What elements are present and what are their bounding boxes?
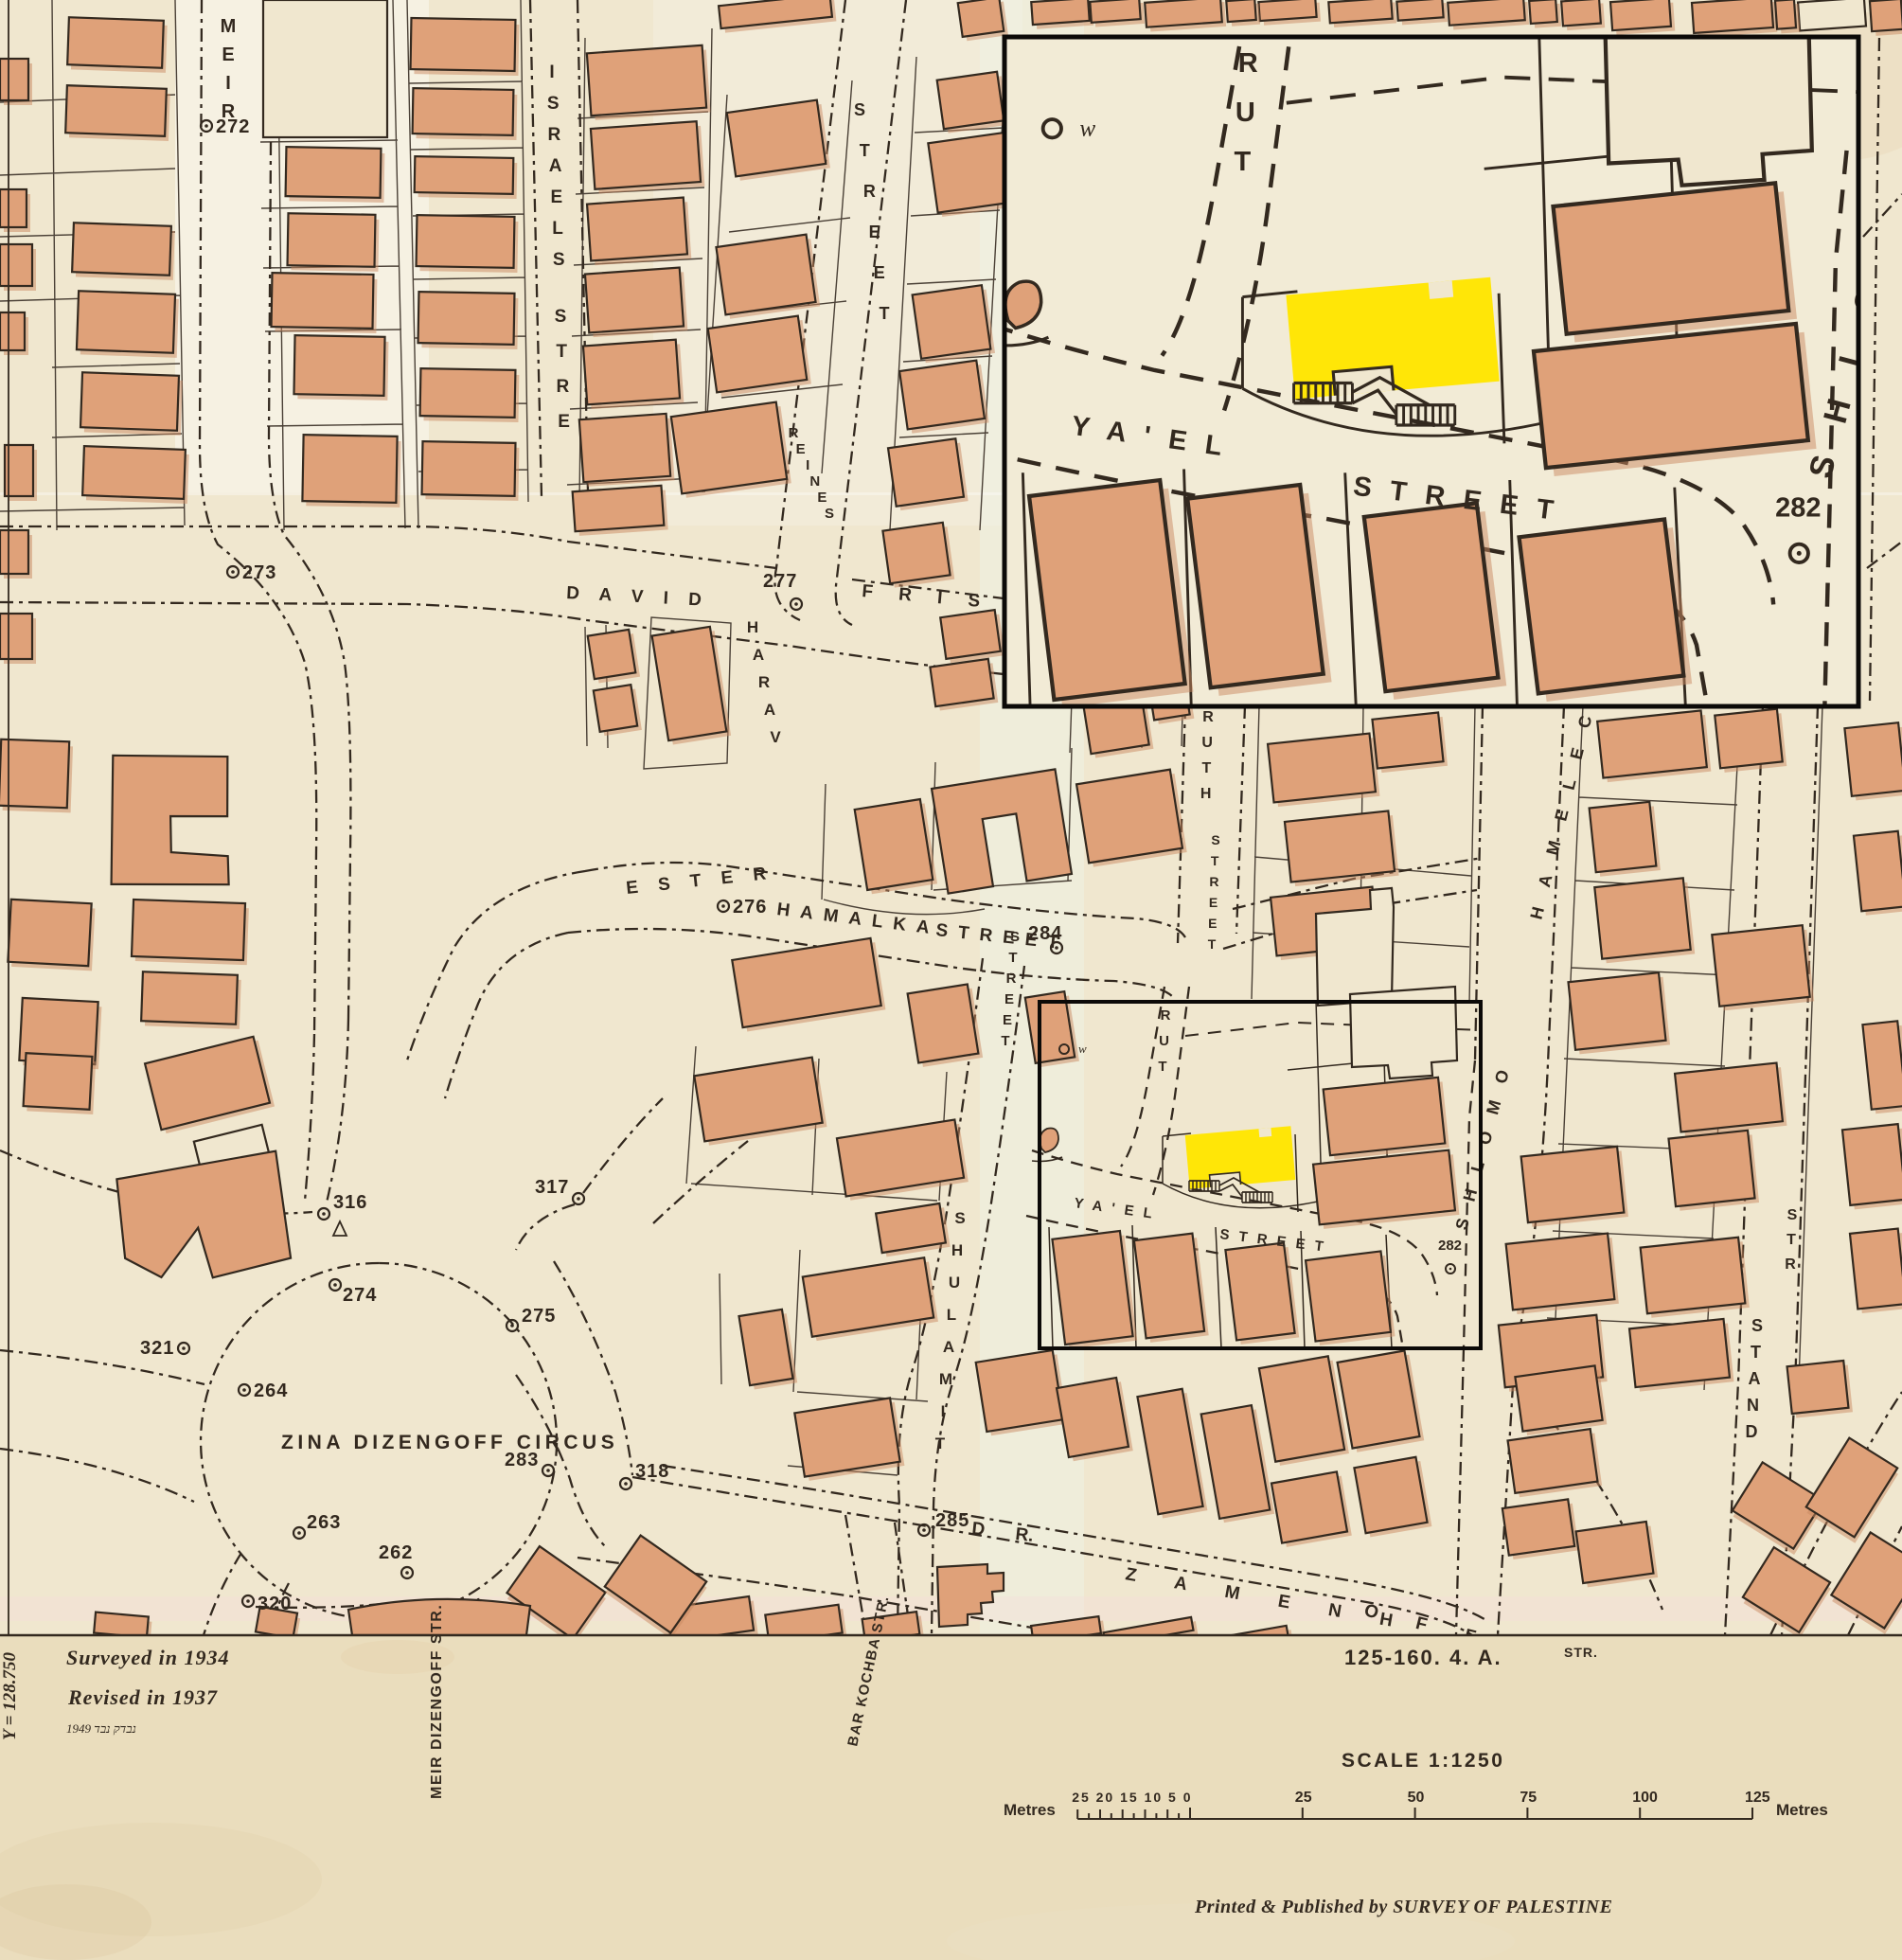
svg-text:125: 125: [1745, 1790, 1770, 1806]
svg-text:E: E: [1004, 991, 1014, 1007]
svg-text:SCALE 1:1250: SCALE 1:1250: [1342, 1750, 1504, 1772]
svg-text:E: E: [1003, 1012, 1012, 1028]
svg-text:MEIR DIZENGOFF STR.: MEIR DIZENGOFF STR.: [429, 1604, 445, 1799]
svg-text:S: S: [547, 94, 560, 114]
svg-text:25: 25: [1295, 1790, 1312, 1806]
svg-text:321: 321: [140, 1338, 174, 1359]
svg-text:75: 75: [1520, 1790, 1537, 1806]
svg-text:U: U: [1201, 735, 1213, 751]
svg-text:Y = 128.750: Y = 128.750: [0, 1652, 20, 1740]
svg-text:D: D: [1746, 1422, 1758, 1441]
svg-text:E: E: [817, 490, 827, 506]
svg-text:T: T: [1001, 1033, 1009, 1049]
svg-text:100: 100: [1632, 1790, 1658, 1806]
svg-text:T: T: [556, 342, 567, 362]
svg-text:S: S: [825, 506, 834, 522]
svg-text:25 20 15 10 5 0: 25 20 15 10 5 0: [1072, 1790, 1192, 1805]
svg-text:ZINA DIZENGOFF CIRCUS: ZINA DIZENGOFF CIRCUS: [281, 1432, 618, 1453]
svg-text:264: 264: [254, 1381, 288, 1401]
svg-text:R: R: [789, 425, 799, 441]
svg-text:T: T: [880, 304, 890, 323]
svg-text:V: V: [770, 728, 781, 746]
svg-text:Printed & Published by SURVEY: Printed & Published by SURVEY OF PALESTI…: [1194, 1897, 1612, 1917]
svg-text:T: T: [860, 141, 870, 160]
svg-text:H: H: [951, 1241, 963, 1259]
svg-text:E: E: [222, 45, 234, 65]
svg-text:L: L: [552, 219, 563, 239]
svg-text:Metres: Metres: [1776, 1801, 1828, 1819]
svg-text:125-160. 4. A.: 125-160. 4. A.: [1344, 1646, 1502, 1669]
svg-text:T: T: [1751, 1343, 1761, 1362]
svg-text:R: R: [1202, 709, 1214, 725]
svg-text:A: A: [764, 701, 775, 719]
svg-text:262: 262: [379, 1542, 413, 1563]
svg-text:A: A: [549, 156, 562, 176]
svg-text:R: R: [548, 125, 561, 145]
svg-text:T: T: [1008, 950, 1017, 966]
svg-text:283: 283: [505, 1450, 539, 1470]
svg-text:M: M: [221, 16, 237, 37]
svg-text:S: S: [1010, 929, 1020, 945]
svg-text:318: 318: [635, 1461, 669, 1482]
svg-text:T: T: [935, 1434, 946, 1452]
svg-text:R: R: [1006, 971, 1017, 987]
svg-text:E: E: [869, 223, 880, 241]
svg-text:T: T: [1208, 936, 1217, 952]
svg-text:R: R: [1785, 1256, 1796, 1273]
svg-text:H: H: [747, 618, 758, 636]
svg-text:D: D: [970, 1519, 986, 1540]
svg-text:A: A: [943, 1338, 954, 1356]
svg-text:I: I: [941, 1402, 946, 1420]
svg-text:R.: R.: [1014, 1524, 1034, 1546]
svg-text:285: 285: [935, 1510, 969, 1531]
svg-text:A: A: [1749, 1369, 1761, 1388]
svg-text:E: E: [796, 441, 806, 457]
svg-text:S: S: [1211, 832, 1219, 847]
svg-text:N: N: [809, 473, 820, 490]
svg-text:L: L: [947, 1306, 956, 1324]
svg-text:317: 317: [535, 1177, 569, 1198]
svg-text:274: 274: [343, 1285, 377, 1306]
svg-text:263: 263: [307, 1512, 341, 1533]
svg-text:R: R: [863, 182, 876, 201]
svg-text:T: T: [1786, 1232, 1796, 1248]
svg-text:R: R: [557, 377, 570, 397]
svg-text:S: S: [1751, 1316, 1763, 1335]
svg-text:E: E: [558, 412, 570, 432]
svg-text:T: T: [1202, 760, 1212, 776]
svg-text:A: A: [753, 646, 764, 664]
svg-text:M: M: [939, 1370, 952, 1388]
svg-text:Metres: Metres: [1004, 1801, 1056, 1819]
svg-text:R: R: [758, 673, 770, 691]
svg-text:E: E: [550, 187, 562, 207]
svg-text:S: S: [553, 250, 565, 270]
svg-text:H: H: [1200, 786, 1212, 802]
svg-text:S: S: [1787, 1207, 1798, 1223]
svg-text:E: E: [1208, 916, 1217, 931]
svg-text:284: 284: [1028, 923, 1062, 944]
svg-text:STR.: STR.: [1564, 1645, 1598, 1660]
svg-text:320: 320: [258, 1594, 292, 1614]
svg-text:272: 272: [216, 116, 250, 137]
svg-text:R: R: [1209, 874, 1218, 889]
svg-text:316: 316: [333, 1192, 367, 1213]
svg-text:I: I: [549, 62, 554, 82]
svg-text:277: 277: [763, 571, 797, 592]
svg-text:E: E: [1209, 895, 1218, 910]
svg-text:50: 50: [1408, 1790, 1425, 1806]
svg-text:U: U: [949, 1274, 960, 1292]
svg-text:N: N: [1747, 1396, 1759, 1415]
svg-text:I: I: [806, 457, 809, 473]
svg-text:273: 273: [242, 562, 276, 583]
svg-text:S: S: [555, 307, 567, 327]
svg-text:Revised in 1937: Revised in 1937: [67, 1685, 218, 1709]
svg-text:S: S: [854, 100, 865, 119]
svg-text:S: S: [954, 1209, 965, 1227]
svg-text:E: E: [874, 263, 885, 282]
svg-text:T: T: [1211, 853, 1219, 868]
svg-text:276: 276: [733, 897, 767, 918]
svg-text:Surveyed in 1934: Surveyed in 1934: [66, 1646, 229, 1669]
svg-text:1949 נבדק נבד: 1949 נבדק נבד: [66, 1721, 136, 1736]
svg-text:275: 275: [522, 1306, 556, 1327]
svg-text:I: I: [225, 73, 231, 94]
